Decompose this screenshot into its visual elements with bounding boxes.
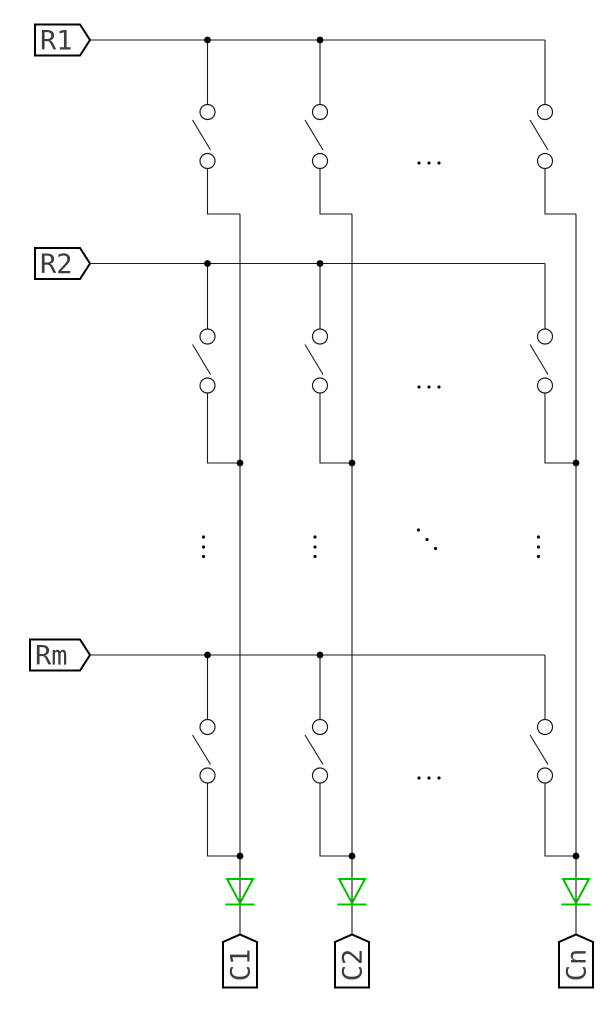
- ellipsis-dot: [537, 545, 540, 548]
- keyboard-matrix-schematic: R1R2RmC1C2Cn: [0, 0, 612, 1009]
- ellipsis-dot: [434, 547, 437, 550]
- ellipsis-dot: [437, 161, 440, 164]
- junction-dot: [573, 460, 580, 467]
- column-label-text-c3: Cn: [562, 949, 593, 982]
- row-label-text-rm: Rm: [35, 641, 68, 672]
- junction-dot: [317, 652, 324, 659]
- ellipsis-dot: [313, 535, 316, 538]
- junction-dot: [204, 260, 211, 267]
- schematic-page: R1R2RmC1C2Cn: [0, 0, 612, 1009]
- ellipsis-dot: [537, 535, 540, 538]
- junction-dot: [349, 460, 356, 467]
- ellipsis-dot: [425, 538, 428, 541]
- ellipsis-dot: [427, 776, 430, 779]
- junction-dot: [317, 260, 324, 267]
- junction-dot: [317, 37, 324, 44]
- column-label-text-c2: C2: [338, 949, 369, 982]
- ellipsis-dot: [313, 545, 316, 548]
- junction-dot: [349, 853, 356, 860]
- ellipsis-dot: [202, 555, 205, 558]
- row-label-text-r2: R2: [40, 249, 73, 280]
- ellipsis-dot: [202, 545, 205, 548]
- ellipsis-dot: [437, 776, 440, 779]
- ellipsis-dot: [313, 555, 316, 558]
- ellipsis-dot: [202, 535, 205, 538]
- ellipsis-dot: [417, 161, 420, 164]
- ellipsis-dot: [427, 161, 430, 164]
- ellipsis-dot: [437, 385, 440, 388]
- ellipsis-dot: [417, 528, 420, 531]
- ellipsis-dot: [417, 385, 420, 388]
- ellipsis-dot: [417, 776, 420, 779]
- junction-dot: [204, 37, 211, 44]
- column-label-text-c1: C1: [226, 949, 257, 982]
- junction-dot: [237, 853, 244, 860]
- ellipsis-dot: [537, 555, 540, 558]
- junction-dot: [237, 460, 244, 467]
- canvas-background: [0, 0, 612, 1009]
- row-label-text-r1: R1: [40, 26, 73, 57]
- junction-dot: [573, 853, 580, 860]
- ellipsis-dot: [427, 385, 430, 388]
- junction-dot: [204, 652, 211, 659]
